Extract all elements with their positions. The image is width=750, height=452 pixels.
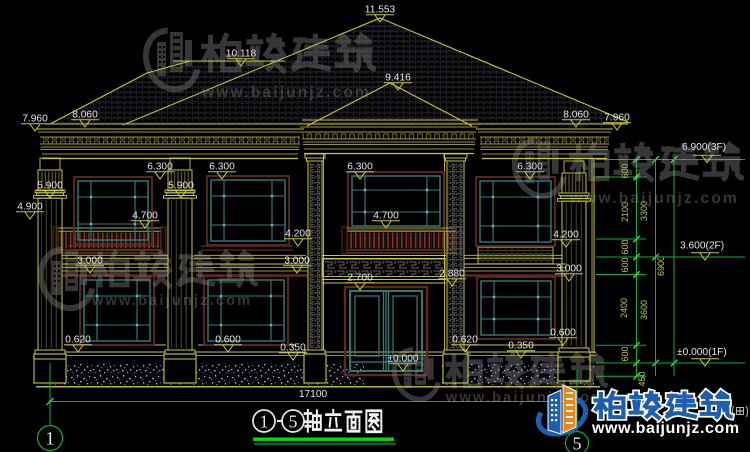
svg-text:11.553: 11.553 bbox=[365, 5, 396, 16]
svg-text:4.700: 4.700 bbox=[132, 211, 158, 222]
svg-text:3.000: 3.000 bbox=[556, 264, 582, 275]
svg-text:2400: 2400 bbox=[619, 298, 629, 318]
svg-text:3.600(2F): 3.600(2F) bbox=[680, 241, 724, 252]
svg-text:±0.000(1F): ±0.000(1F) bbox=[677, 347, 727, 358]
svg-text:7.960: 7.960 bbox=[22, 114, 48, 125]
svg-text:www.baijunjz.com: www.baijunjz.com bbox=[91, 293, 252, 309]
svg-text:6.300: 6.300 bbox=[147, 162, 173, 173]
svg-text:6.300: 6.300 bbox=[347, 162, 373, 173]
svg-text:600: 600 bbox=[620, 346, 630, 361]
svg-text:8.060: 8.060 bbox=[563, 110, 589, 121]
svg-text:0.350: 0.350 bbox=[280, 343, 306, 354]
svg-text:4.700: 4.700 bbox=[373, 211, 399, 222]
svg-text:www.baijunjz.com: www.baijunjz.com bbox=[569, 190, 739, 207]
svg-text:0.350: 0.350 bbox=[508, 341, 534, 352]
svg-text:5: 5 bbox=[573, 434, 582, 452]
svg-text:9.416: 9.416 bbox=[385, 73, 411, 84]
svg-text:0.620: 0.620 bbox=[65, 335, 91, 346]
svg-text:4.200: 4.200 bbox=[553, 230, 579, 241]
svg-text:3.000: 3.000 bbox=[284, 256, 310, 267]
svg-text:600: 600 bbox=[620, 239, 630, 254]
svg-text:7.960: 7.960 bbox=[604, 113, 630, 124]
svg-text:www.baijunjz.com: www.baijunjz.com bbox=[201, 84, 371, 101]
svg-text:0.600: 0.600 bbox=[550, 328, 576, 339]
svg-text:2.700: 2.700 bbox=[347, 273, 373, 284]
svg-text:600: 600 bbox=[620, 257, 630, 272]
svg-text:1: 1 bbox=[260, 412, 269, 432]
svg-text:17100: 17100 bbox=[299, 389, 328, 400]
svg-text:1: 1 bbox=[45, 429, 55, 450]
svg-text:6900: 6900 bbox=[656, 256, 666, 276]
svg-text:4.900: 4.900 bbox=[17, 202, 43, 213]
svg-text:2.880: 2.880 bbox=[439, 269, 465, 280]
svg-text:5: 5 bbox=[289, 412, 298, 432]
svg-text:3600: 3600 bbox=[639, 300, 649, 320]
svg-text:8.060: 8.060 bbox=[72, 110, 98, 121]
svg-text:5.900: 5.900 bbox=[37, 181, 63, 192]
svg-text:0.620: 0.620 bbox=[452, 335, 478, 346]
svg-text:5.900: 5.900 bbox=[168, 181, 194, 192]
svg-text:4.200: 4.200 bbox=[285, 229, 311, 240]
svg-text:450: 450 bbox=[637, 371, 647, 386]
svg-text:www.baijunjz.com: www.baijunjz.com bbox=[591, 420, 740, 437]
svg-text:6.300: 6.300 bbox=[209, 162, 235, 173]
svg-text:0.600: 0.600 bbox=[215, 335, 241, 346]
